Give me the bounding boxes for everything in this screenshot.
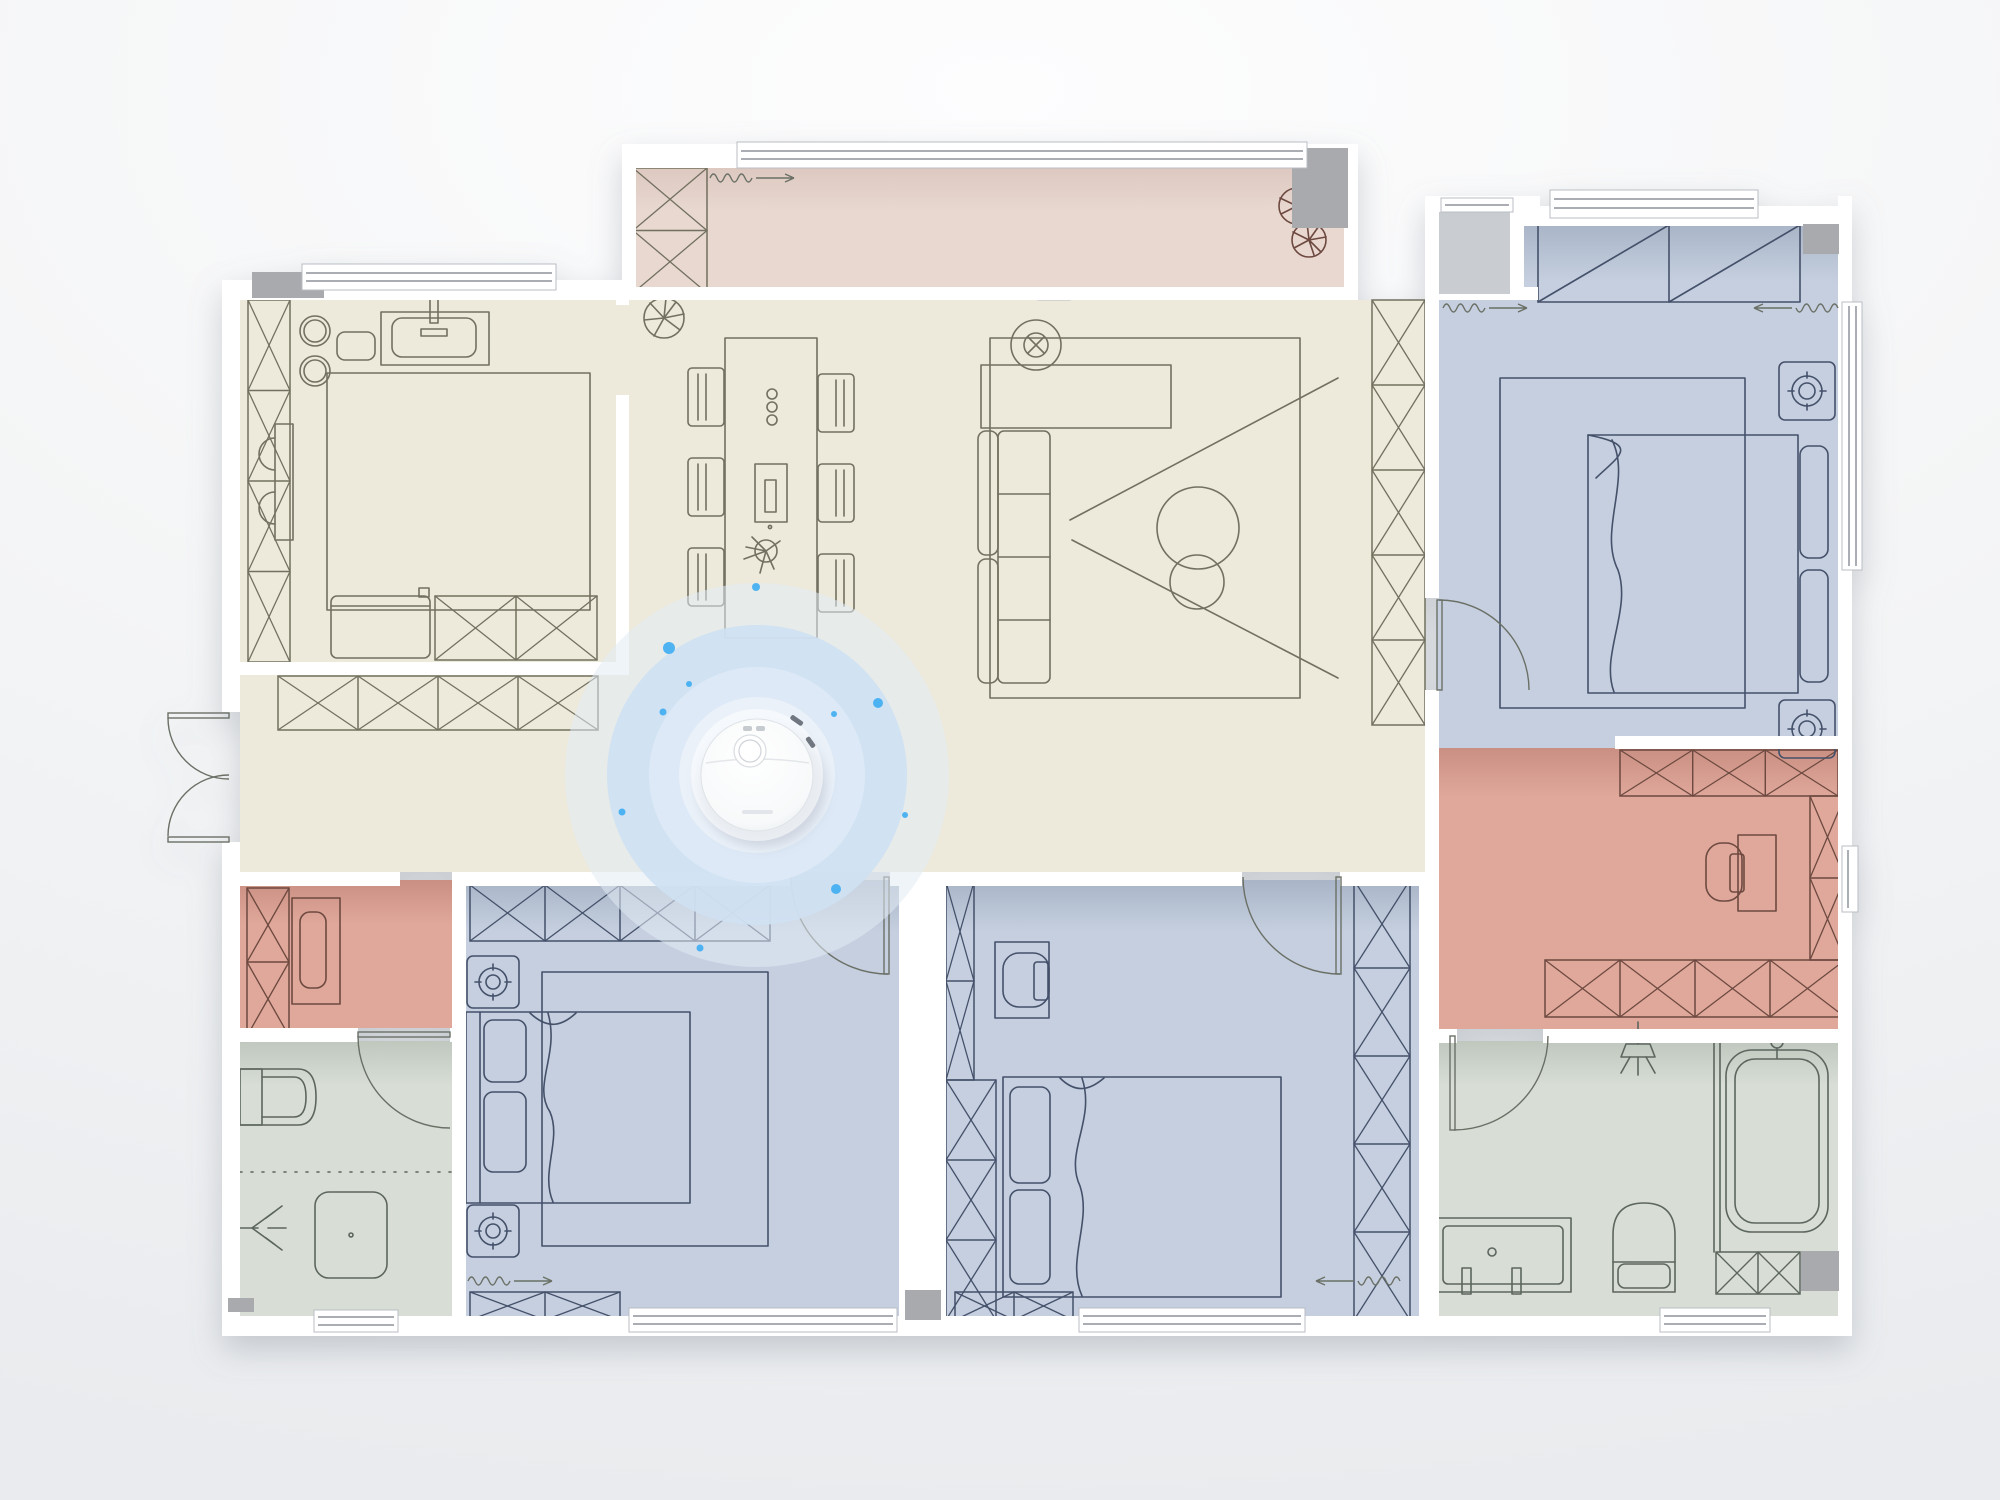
robot-body [701,719,813,831]
robot-sensor [756,726,765,731]
window [737,142,1307,168]
entry-double-door [168,713,229,842]
window [314,1310,398,1332]
floor-plan [168,142,1862,1336]
floor-plan-stage [0,0,2000,1500]
window [302,264,556,290]
window [1079,1308,1305,1332]
room-study-floor [240,300,616,668]
window [629,1308,897,1332]
utility-notch [1439,212,1510,294]
window [1660,1308,1770,1332]
window [1842,846,1858,912]
window [1441,198,1513,212]
floor-plan-svg [0,0,2000,1500]
window [1842,302,1862,570]
room-bedroom-b-floor [946,880,1419,1320]
window [1550,190,1758,218]
robot-sensor [743,726,752,731]
robot-brand-mark [742,810,773,814]
